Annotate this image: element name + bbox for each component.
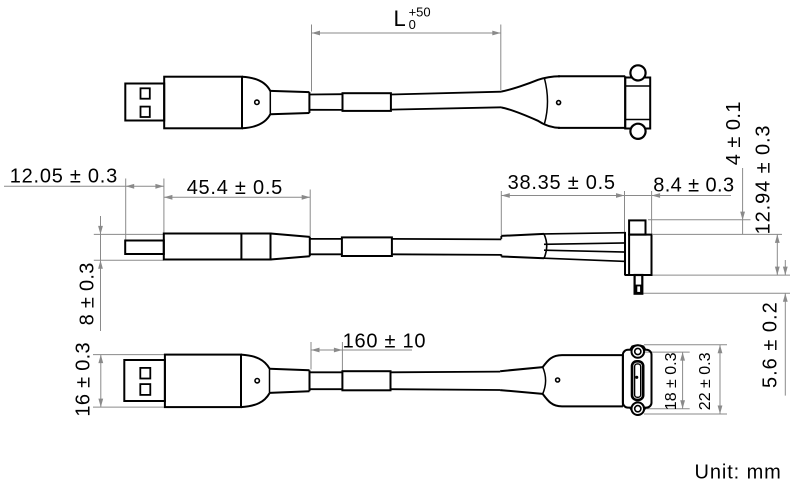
svg-text:8 ± 0.3: 8 ± 0.3	[77, 262, 99, 325]
svg-text:12.94 ± 0.3: 12.94 ± 0.3	[753, 125, 775, 235]
svg-text:5.6 ± 0.2: 5.6 ± 0.2	[759, 301, 781, 388]
svg-text:22 ± 0.3: 22 ± 0.3	[697, 352, 714, 410]
svg-text:16 ± 0.3: 16 ± 0.3	[72, 342, 94, 417]
svg-text:4 ± 0.1: 4 ± 0.1	[723, 101, 745, 165]
svg-text:12.05 ± 0.3: 12.05 ± 0.3	[10, 166, 118, 188]
svg-text:160 ± 10: 160 ± 10	[343, 331, 427, 353]
svg-text:Unit: mm: Unit: mm	[695, 462, 782, 484]
svg-text:8.4 ± 0.3: 8.4 ± 0.3	[653, 175, 734, 197]
svg-text:45.4 ± 0.5: 45.4 ± 0.5	[187, 177, 283, 199]
svg-text:18 ± 0.3: 18 ± 0.3	[663, 352, 680, 410]
svg-text:L: L	[394, 6, 406, 31]
svg-text:0: 0	[409, 17, 416, 32]
svg-text:38.35 ± 0.5: 38.35 ± 0.5	[508, 172, 616, 194]
